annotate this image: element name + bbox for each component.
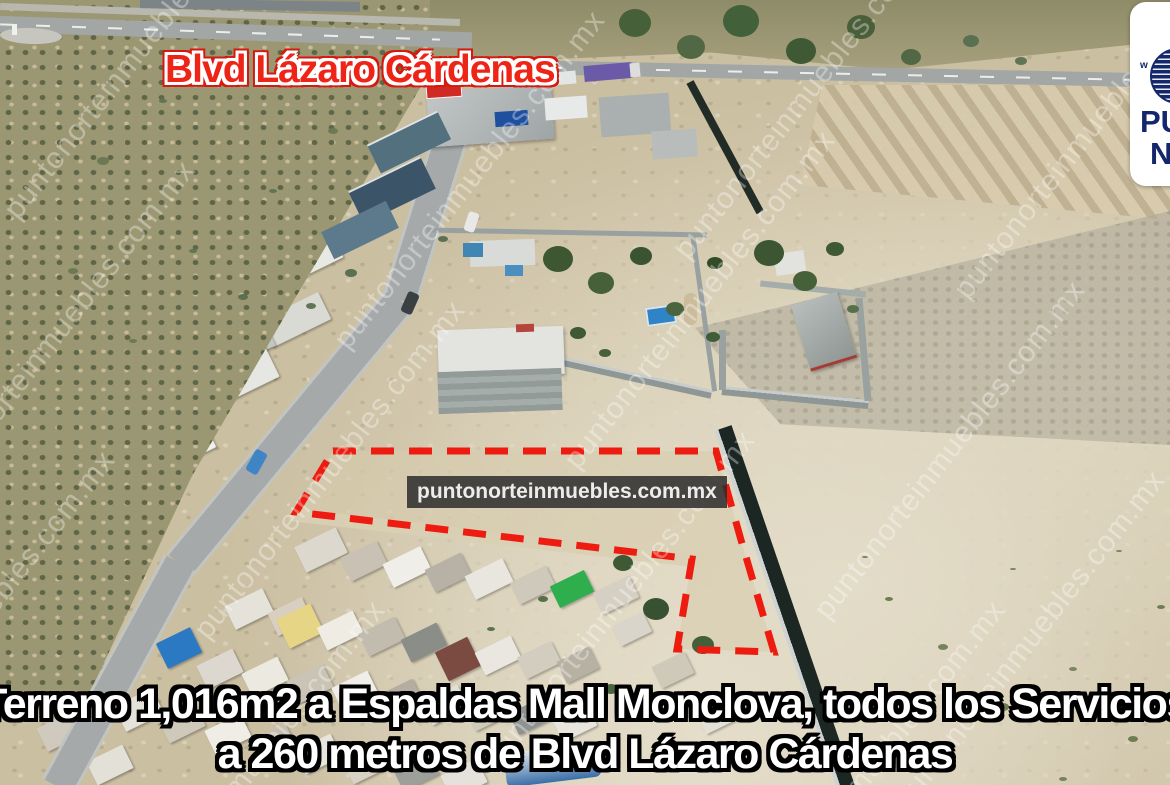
caption-line-2: a 260 metros de Blvd Lázaro Cárdenas [218,730,953,779]
globe-icon [1150,48,1170,104]
logo-small-text: w [1140,60,1148,71]
caption-line-1: Terreno 1,016m2 a Espaldas Mall Monclova… [0,680,1170,729]
center-watermark-text: puntonorteinmuebles.com.mx [417,480,717,503]
agency-logo-card: w PU N [1130,2,1170,186]
street-label: Blvd Lázaro Cárdenas [165,48,555,92]
aerial-photo: puntonorteinmuebles.com.mx puntonorteinm… [0,0,1170,785]
logo-text-line-1: PU [1140,104,1170,140]
logo-text-line-2: N [1150,136,1170,172]
center-watermark-bar: puntonorteinmuebles.com.mx [407,476,727,508]
